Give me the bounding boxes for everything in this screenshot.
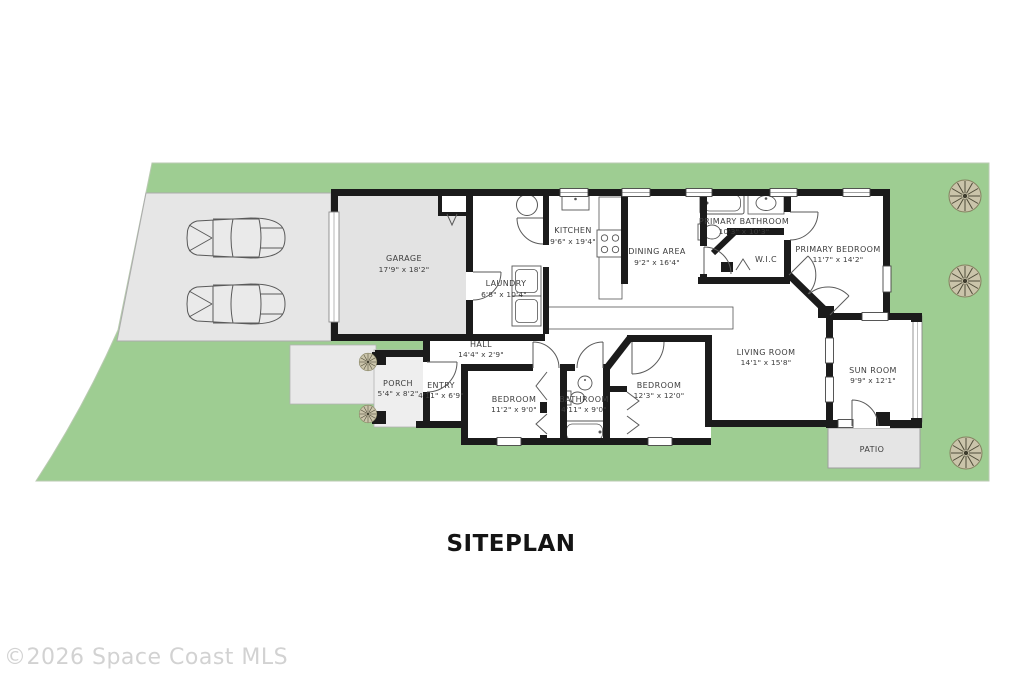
- room-dims-laundry: 6'8" x 10'4": [481, 290, 527, 299]
- watermark: ©2026 Space Coast MLS: [4, 645, 288, 670]
- kitchen-island: [545, 307, 733, 329]
- room-dims-kitchen: 9'6" x 19'4": [550, 237, 596, 246]
- sink-icon: [578, 376, 592, 390]
- room-name-living: LIVING ROOM: [737, 348, 796, 357]
- room-dims-sunroom: 9'9" x 12'1": [850, 376, 896, 385]
- stove-icon: [597, 230, 622, 257]
- tree-icon: [949, 265, 981, 297]
- room-name-laundry: LAUNDRY: [486, 279, 527, 288]
- walkway: [290, 345, 376, 404]
- page-title: SITEPLAN: [446, 531, 575, 557]
- room-dims-hall: 14'4" x 2'9": [458, 350, 504, 359]
- room-name-bedroom2: BEDROOM: [637, 381, 682, 390]
- room-name-bathroom: BATHROOM: [559, 395, 609, 404]
- room-name-kitchen: KITCHEN: [554, 226, 591, 235]
- room-dims-dining: 9'2" x 16'4": [634, 258, 680, 267]
- bush-icon: [359, 405, 377, 423]
- bush-icon: [359, 353, 377, 371]
- room-dims-living: 14'1" x 15'8": [741, 358, 792, 367]
- room-name-wic: W.I.C: [755, 255, 777, 264]
- room-dims-entry: 4'11" x 6'9": [418, 391, 464, 400]
- room-name-bedroom1: BEDROOM: [492, 395, 537, 404]
- room-dims-bedroom1: 11'2" x 9'0": [491, 405, 537, 414]
- room-name-sunroom: SUN ROOM: [849, 366, 897, 375]
- room-name-dining: DINING AREA: [628, 247, 686, 256]
- room-name-entry: ENTRY: [427, 381, 455, 390]
- room-name-porch: PORCH: [383, 379, 413, 388]
- tree-icon: [949, 180, 981, 212]
- utility-sink-icon: [517, 195, 538, 216]
- car-icon: [187, 284, 285, 324]
- room-dims-bathroom: 4'11" x 9'0": [561, 405, 607, 414]
- car-icon: [187, 218, 285, 258]
- siteplan-page: GARAGE 17'9" x 18'2" LAUNDRY 6'8" x 10'4…: [0, 0, 1024, 683]
- room-dims-primary-bedroom: 11'7" x 14'2": [813, 255, 864, 264]
- room-name-garage: GARAGE: [386, 254, 422, 263]
- room-name-primary-bathroom: PRIMARY BATHROOM: [699, 217, 789, 226]
- room-dims-porch: 5'4" x 8'2": [378, 389, 419, 398]
- room-dims-bedroom2: 12'3" x 12'0": [634, 391, 685, 400]
- room-name-primary-bedroom: PRIMARY BEDROOM: [795, 245, 880, 254]
- siteplan-drawing: GARAGE 17'9" x 18'2" LAUNDRY 6'8" x 10'4…: [0, 0, 1024, 683]
- room-dims-primary-bathroom: 10'3" x 10'3": [719, 227, 770, 236]
- room-name-hall: HALL: [470, 340, 492, 349]
- room-dims-garage: 17'9" x 18'2": [379, 265, 430, 274]
- tree-icon: [950, 437, 982, 469]
- room-name-patio: PATIO: [860, 445, 885, 454]
